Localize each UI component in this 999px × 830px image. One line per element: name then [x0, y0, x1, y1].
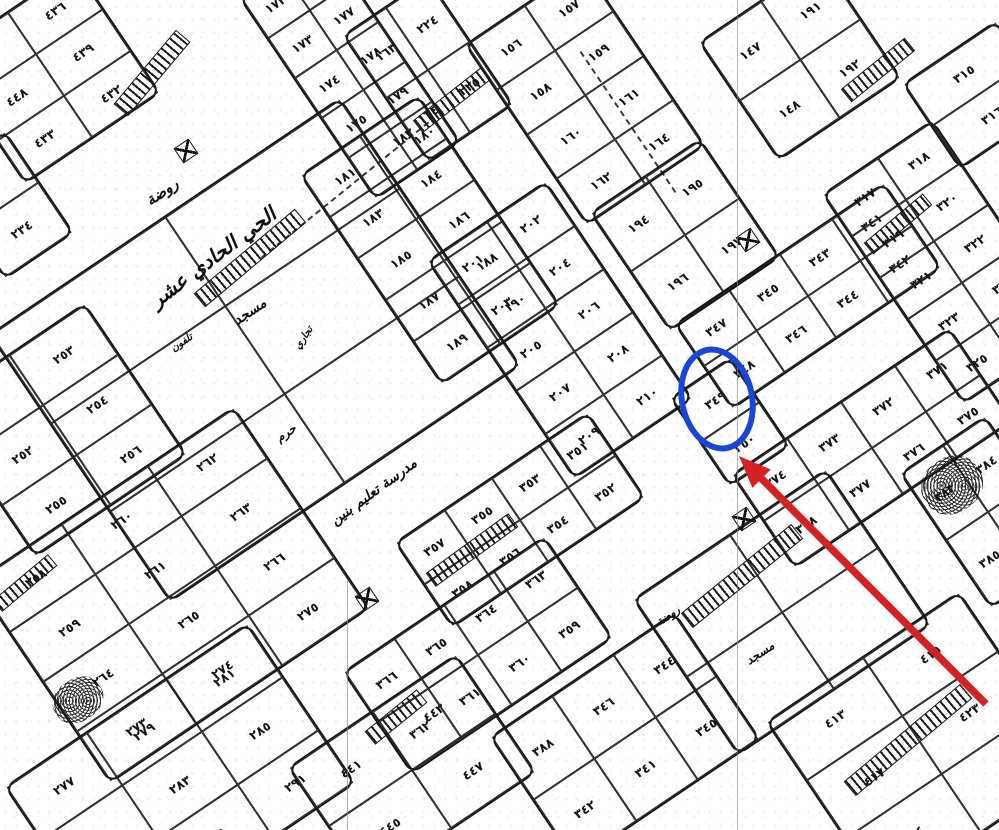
cadastral-map-canvas: ٤٣٥٤٣٦٤٤٨٤٣٩٤٣٣٤٣٢٢٣٦٢٣٤١٧٢١٧٦١٧٣١٧٧١٧٤١… [0, 0, 999, 830]
label-kindergarten: روضة [142, 175, 181, 210]
scan-fold-line [347, 580, 348, 830]
